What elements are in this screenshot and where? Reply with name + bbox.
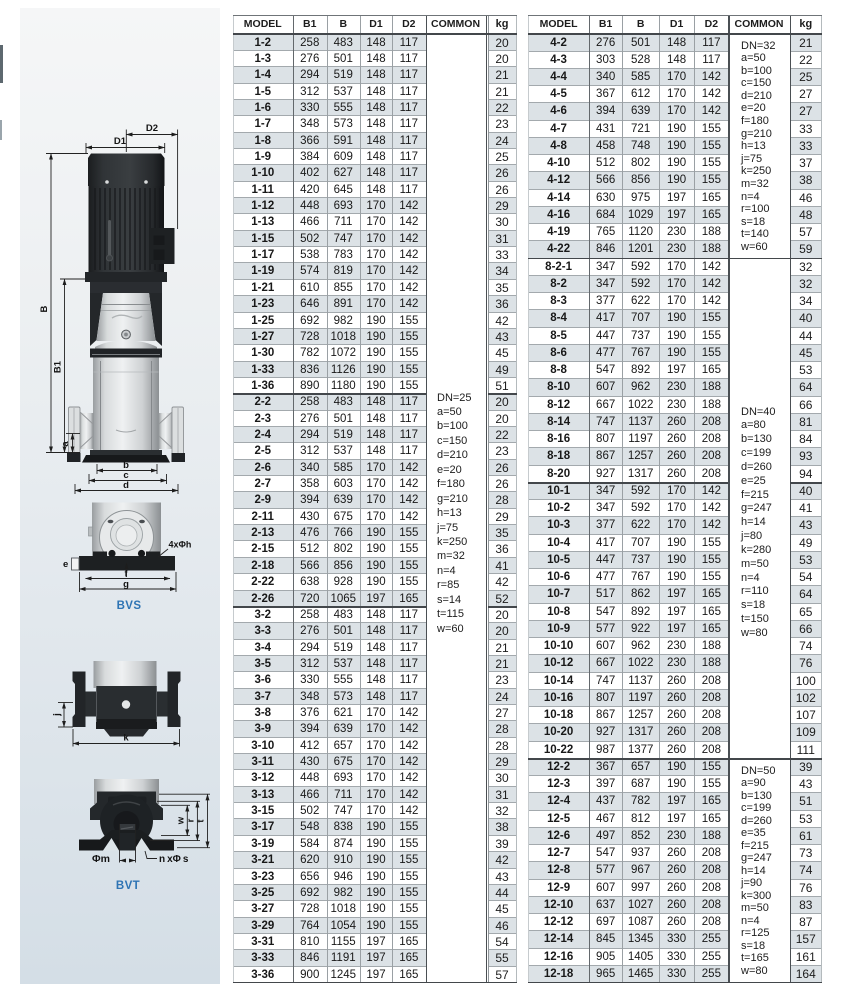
- svg-text:B: B: [39, 305, 50, 312]
- svg-text:g: g: [123, 579, 129, 590]
- svg-text:n xΦ s: n xΦ s: [159, 854, 189, 865]
- svg-text:Φm: Φm: [92, 853, 110, 865]
- svg-text:BVT: BVT: [116, 880, 140, 892]
- svg-text:k: k: [123, 733, 129, 744]
- svg-text:a: a: [60, 441, 71, 447]
- svg-text:D2: D2: [146, 123, 158, 134]
- svg-text:j: j: [52, 713, 63, 717]
- svg-text:B1: B1: [53, 360, 64, 373]
- svg-text:d: d: [123, 480, 129, 491]
- svg-text:e: e: [63, 559, 68, 570]
- svg-text:D1: D1: [114, 136, 127, 147]
- svg-text:4xΦh: 4xΦh: [169, 540, 192, 550]
- svg-text:BVS: BVS: [117, 600, 142, 612]
